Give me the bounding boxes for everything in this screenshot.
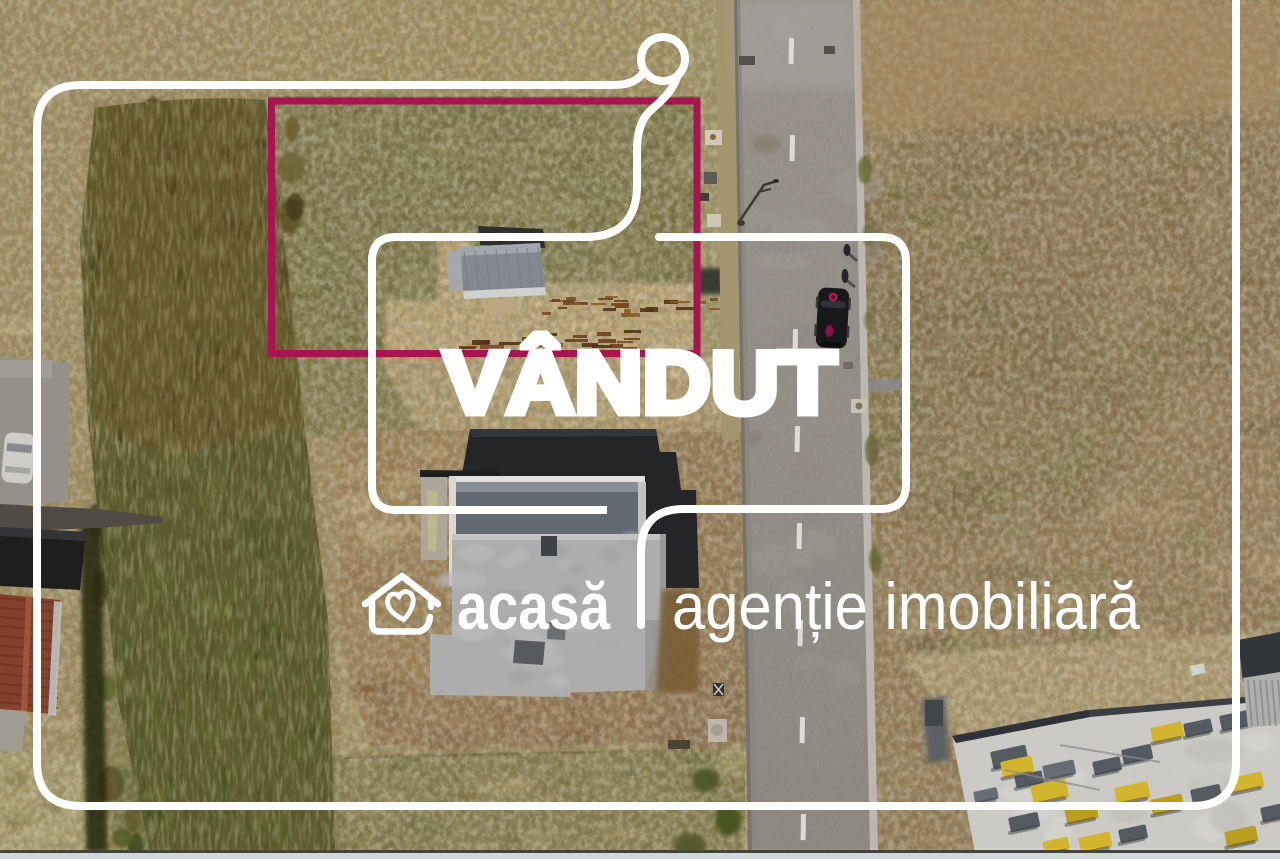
- svg-text:acasă: acasă: [457, 569, 611, 643]
- svg-text:VÂNDUT: VÂNDUT: [444, 333, 837, 432]
- svg-text:agenție imobiliară: agenție imobiliară: [672, 569, 1140, 643]
